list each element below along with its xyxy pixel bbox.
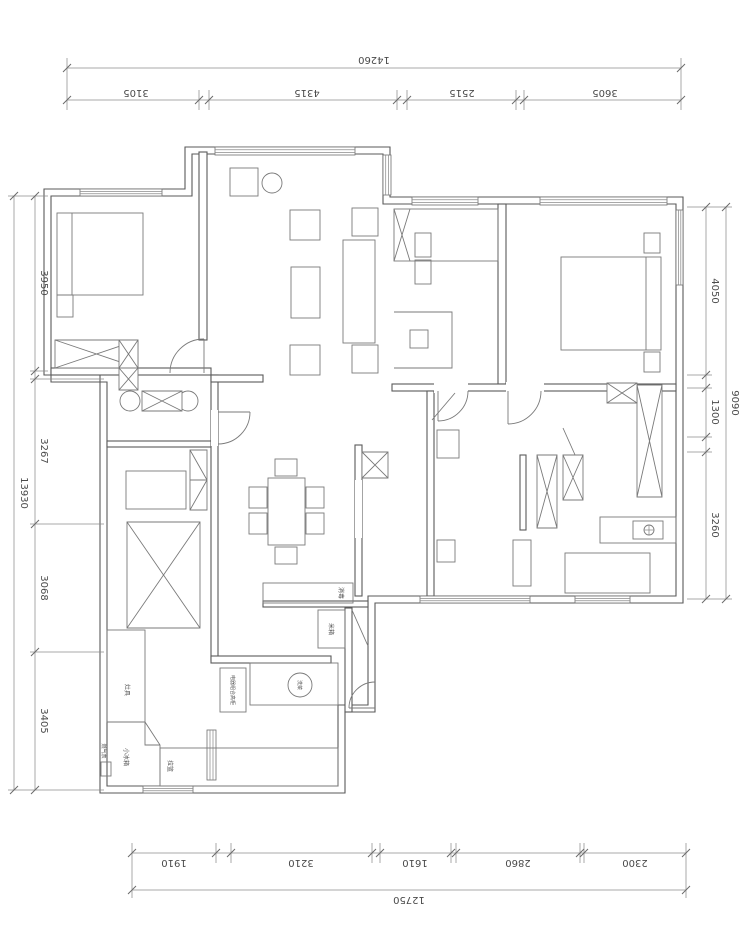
door-leaf-dining [352, 610, 368, 646]
living-room-furniture [230, 168, 378, 375]
gas-meter-box [101, 762, 111, 776]
master-nightstand-top [644, 233, 660, 253]
kitchen-counter-top [250, 663, 338, 705]
chair-bottom [275, 547, 297, 564]
label-sink: 洗菜 [296, 680, 303, 690]
dimension-top: 14260 3105 4315 2515 3605 [63, 54, 685, 110]
window-wing-top-b [540, 197, 667, 205]
window-living-top [215, 147, 355, 155]
door-strip-bath-arc [218, 412, 250, 444]
chair-right-a [306, 487, 324, 508]
floorplan-page: 灶具 小冰箱 拉篮 洗菜 燃气表 消毒 米箱 电器组合高柜 14260 3105… [0, 0, 740, 935]
window-bottom-b [575, 596, 630, 603]
dim-bottom-total: 12750 [393, 894, 425, 905]
wall-bed1-living [199, 152, 207, 340]
desk [394, 312, 452, 368]
master-nightstand-bottom [644, 352, 660, 372]
kitchen-counter-bottom [160, 748, 338, 786]
closet-x-small [563, 455, 583, 500]
dim-left-total: 13930 [18, 477, 29, 509]
bath-fixture-b [437, 540, 455, 562]
side-table-top [352, 208, 378, 236]
chair-left-b [249, 513, 267, 534]
wall-pantry-south [263, 601, 368, 607]
chair-right-b [306, 513, 324, 534]
wall-bath-mid [520, 455, 526, 530]
strip-cabinet-x [142, 391, 182, 411]
bed2-cushion-a [415, 233, 431, 257]
bed1-nightstand [57, 295, 73, 317]
door-opening-strip-bath [211, 410, 218, 446]
strip-shelf-diag [190, 450, 207, 510]
master-bedroom-furniture [561, 233, 661, 372]
dim-left-seg-2: 3267 [38, 438, 49, 463]
window-right-wall [676, 210, 683, 285]
dining-table [268, 478, 305, 545]
door-leaf-bath [432, 393, 455, 420]
label-gas-meter: 燃气表 [100, 743, 107, 758]
plant [262, 173, 282, 193]
dim-bottom-seg-5: 2300 [622, 857, 647, 868]
dim-left-seg-1: 3950 [38, 270, 49, 295]
wardrobe1-corner-x [119, 340, 138, 390]
dim-right-seg-2: 1300 [709, 399, 720, 424]
window-bottom-a [420, 596, 530, 603]
bath-dressing-furniture [362, 383, 676, 593]
window-kitchen-side [207, 730, 216, 780]
dim-left-seg-4: 3405 [38, 708, 49, 733]
dim-top-seg-4: 3605 [592, 87, 617, 98]
dim-top-total: 14260 [358, 54, 390, 65]
bed2-cushion-b [415, 260, 431, 284]
door-corridor-arc [349, 682, 375, 708]
window-living-right [383, 155, 391, 195]
wall-strip-bath-south [107, 441, 211, 447]
bath-fixture-c [437, 430, 459, 458]
dim-left-seg-3: 3068 [38, 575, 49, 600]
dim-top-seg-2: 4315 [294, 87, 319, 98]
wall-hall-south [211, 375, 263, 382]
coffee-table [291, 267, 320, 318]
bed1 [57, 213, 143, 295]
floor-plan-drawing: 灶具 小冰箱 拉篮 洗菜 燃气表 消毒 米箱 电器组合高柜 14260 3105… [0, 0, 740, 935]
bath-fixture-a [513, 540, 531, 586]
sofa [343, 240, 375, 343]
door-opening-bed2 [434, 382, 468, 393]
strip-basin-a [120, 391, 140, 411]
dim-bottom-seg-1: 1910 [161, 857, 186, 868]
dim-right-seg-3: 3260 [709, 512, 720, 537]
window-wing-top-a [412, 197, 478, 205]
armchair-top [290, 210, 320, 240]
bed2-detail [394, 209, 410, 261]
dimension-left: 3950 3267 3068 3405 13930 [8, 192, 104, 794]
door-master-arc [508, 391, 541, 424]
dimension-bottom: 1910 3210 1610 2860 2300 12750 [128, 843, 690, 905]
wall-corridor-west [345, 608, 352, 712]
bedroom1-furniture [55, 213, 143, 390]
wardrobe-master-x2 [607, 383, 637, 403]
entry-cabinet [230, 168, 258, 196]
label-basket: 拉篮 [166, 760, 174, 772]
shower-tub [565, 553, 650, 593]
desk-chair [410, 330, 428, 348]
dim-top-seg-3: 2515 [449, 87, 474, 98]
side-table-bottom [352, 345, 378, 373]
label-appliance-cabinet: 电器组合高柜 [229, 675, 236, 705]
kitchen-counter-corner [107, 722, 160, 785]
door-opening-master [506, 382, 544, 393]
window-kitchen-bottom [143, 786, 193, 793]
closet-dining-x [362, 452, 388, 478]
closet-x-column [537, 455, 557, 528]
label-fridge: 小冰箱 [122, 748, 130, 766]
dim-bottom-seg-2: 3210 [288, 857, 313, 868]
dim-right-total: 9090 [729, 390, 740, 415]
dining-set [249, 459, 324, 564]
label-rice-box: 米箱 [327, 623, 335, 635]
wall-bath-left [427, 391, 434, 596]
wall-kitchen-north [211, 656, 331, 663]
chair-left-a [249, 487, 267, 508]
window-bed1-top [80, 189, 162, 196]
door-opening-dining-east [355, 480, 362, 538]
kitchen-counter-left [107, 630, 145, 722]
wardrobe-master-x [637, 385, 662, 497]
wall-bed2-master [498, 204, 506, 384]
chair-top [275, 459, 297, 476]
dimension-right: 4050 1300 3260 9090 [687, 203, 740, 603]
bedroom2-furniture [394, 209, 498, 368]
dim-right-seg-1: 4050 [709, 278, 720, 303]
storage-big-x [127, 522, 200, 628]
left-strip-furniture [120, 391, 207, 628]
dim-bottom-seg-3: 1610 [402, 857, 427, 868]
dim-top-seg-1: 3105 [123, 87, 148, 98]
strip-bench [126, 471, 186, 509]
dim-bottom-seg-4: 2860 [505, 857, 530, 868]
armchair-bottom [290, 345, 320, 375]
bed2 [394, 209, 498, 261]
label-sterilizer: 消毒 [337, 587, 345, 599]
label-stove: 灶具 [123, 684, 131, 696]
